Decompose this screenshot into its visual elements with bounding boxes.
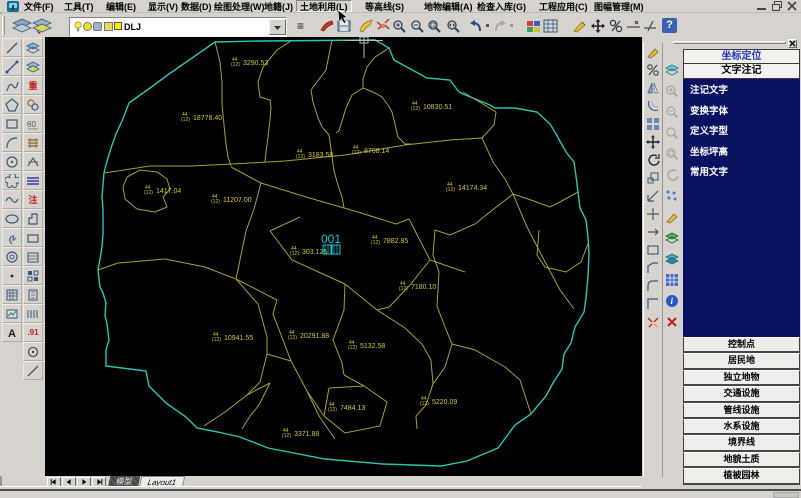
svg-text:8708.14: 8708.14 (364, 148, 389, 155)
svg-text:(12): (12) (144, 190, 153, 196)
svg-text:(12): (12) (352, 150, 361, 156)
svg-text:18778.40: 18778.40 (193, 115, 222, 122)
svg-text:7180.10: 7180.10 (411, 284, 436, 291)
svg-text:(12): (12) (231, 62, 240, 68)
svg-text:(12): (12) (328, 407, 337, 413)
svg-text:20291.88: 20291.88 (300, 333, 329, 340)
svg-text:303.125: 303.125 (302, 249, 327, 256)
svg-text:001: 001 (321, 232, 341, 246)
svg-text:7484.13: 7484.13 (340, 405, 365, 412)
svg-text:A: A (8, 328, 16, 340)
svg-text:7882.85: 7882.85 (383, 238, 408, 245)
svg-text:(12): (12) (348, 345, 357, 351)
svg-text:(12): (12) (399, 286, 408, 292)
svg-text:(12): (12) (288, 335, 297, 341)
svg-text:(12): (12) (371, 240, 380, 246)
svg-text:(12): (12) (411, 106, 420, 112)
svg-text:(12): (12) (212, 337, 221, 343)
svg-text:60: 60 (27, 120, 36, 129)
svg-text:3183.58: 3183.58 (308, 152, 333, 159)
svg-text:10830.51: 10830.51 (423, 104, 452, 111)
svg-text:3290.53: 3290.53 (243, 60, 268, 67)
svg-text:5132.58: 5132.58 (360, 343, 385, 350)
svg-text:10941.55: 10941.55 (224, 335, 253, 342)
svg-text:(12): (12) (446, 187, 455, 193)
svg-text:5220.09: 5220.09 (432, 399, 457, 406)
svg-text:1417.04: 1417.04 (156, 188, 181, 195)
svg-text:(12): (12) (290, 251, 299, 257)
svg-text:(12): (12) (296, 154, 305, 160)
svg-text:14174.34: 14174.34 (458, 185, 487, 192)
svg-text:(12): (12) (282, 433, 291, 439)
svg-text:3371.88: 3371.88 (294, 431, 319, 438)
svg-text:(12): (12) (181, 117, 190, 123)
svg-text:(12): (12) (420, 401, 429, 407)
svg-text:11207.00: 11207.00 (223, 197, 252, 204)
svg-text:(12): (12) (211, 199, 220, 205)
